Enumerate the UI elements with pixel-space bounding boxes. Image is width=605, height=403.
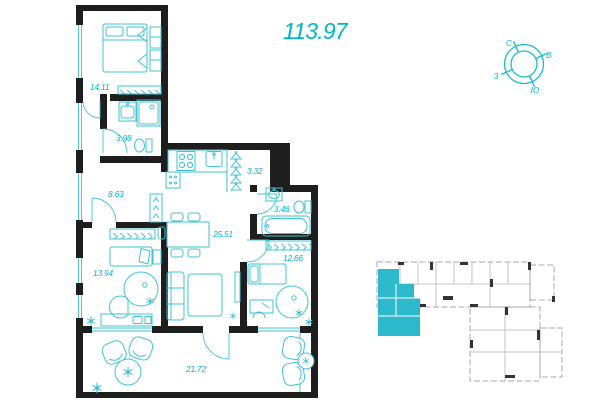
armchair-icon <box>109 296 128 318</box>
terrace-chairs-right-icon <box>281 333 314 392</box>
shelf-icon <box>230 272 240 320</box>
kitchen-counter-icon <box>166 150 227 188</box>
room-area-bathroom-1: 3.98 <box>116 133 132 143</box>
hanger-rail-icon <box>227 150 241 192</box>
plant-icon <box>87 316 95 326</box>
desk-icon <box>250 300 273 318</box>
compass-south-label: Ю <box>531 85 540 95</box>
minimap-wall-chunks <box>398 262 555 378</box>
closet-rail-3-icon <box>110 229 155 239</box>
single-bed-icon <box>248 264 286 284</box>
compass-north-label: С <box>506 38 513 48</box>
single-bed-2-icon <box>110 247 161 266</box>
room-area-hallway: 8.63 <box>108 189 124 199</box>
plant-2-icon <box>92 383 101 394</box>
double-bed-icon <box>103 24 147 72</box>
bathtub-icon <box>262 216 310 236</box>
toilet-2-icon <box>294 201 311 213</box>
wardrobe-icon <box>150 27 161 71</box>
room-area-bedroom-2: 12.66 <box>283 253 304 263</box>
closet-rail-2-icon <box>266 241 311 250</box>
shower-icon <box>137 100 160 126</box>
room-area-terrace: 21.72 <box>185 364 207 374</box>
room-area-bathroom-2: 3.46 <box>274 204 290 214</box>
room-area-bedroom: 14.11 <box>90 82 109 92</box>
building-minimap[interactable] <box>377 262 562 381</box>
coat-cabinet-icon <box>150 194 162 222</box>
windows <box>79 25 301 331</box>
room-area-kitchen-living: 25.51 <box>212 229 233 239</box>
toilet-icon <box>135 139 153 152</box>
compass-icon: С В Ю З <box>493 38 552 95</box>
total-area-label: 113.97 <box>283 18 349 44</box>
sofa-icon <box>167 272 184 320</box>
minimap-highlighted-apartment[interactable] <box>378 269 420 336</box>
sink-icon <box>119 102 136 121</box>
floor-plan-page: 14.11 3.98 8.63 3.32 25.51 3.46 12.66 13… <box>0 0 605 403</box>
terrace-chairs-left-icon <box>100 335 154 385</box>
floor-plan-drawing: 14.11 3.98 8.63 3.32 25.51 3.46 12.66 13… <box>0 0 605 403</box>
room-area-wardrobe: 3.32 <box>247 166 263 176</box>
compass-west-label: З <box>493 71 499 81</box>
rug-icon <box>188 274 222 316</box>
round-rug-2-icon <box>124 272 158 306</box>
closet-rail-icon <box>118 86 161 94</box>
compass-east-label: В <box>546 50 552 60</box>
round-rug-icon <box>276 286 312 326</box>
room-area-bedroom-3: 13.94 <box>93 268 114 278</box>
